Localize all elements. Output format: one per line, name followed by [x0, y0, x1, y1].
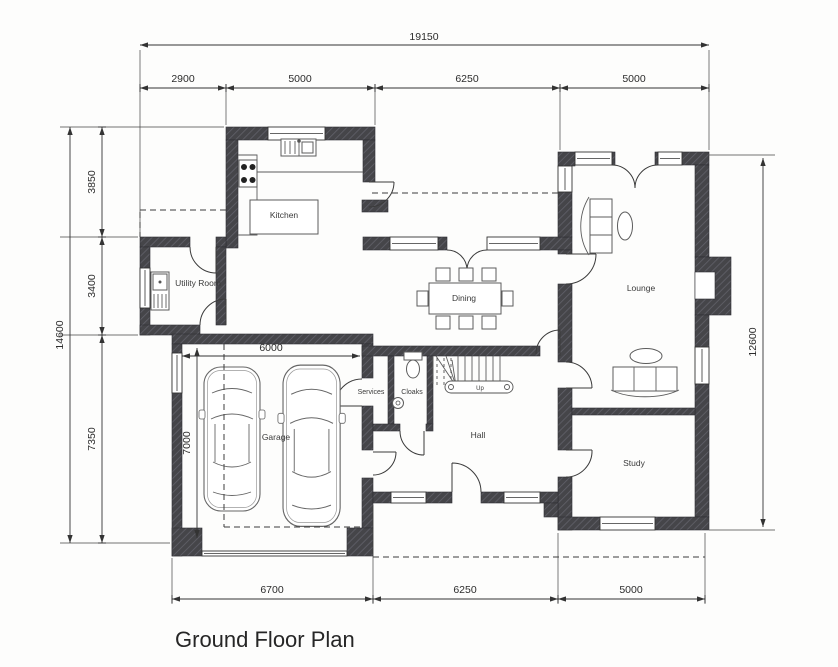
stairs-up-label: Up: [476, 386, 484, 392]
label-dining: Dining: [452, 293, 476, 303]
hall-window-right: [504, 492, 540, 503]
hall-study-door: [566, 450, 592, 477]
garage-cars: [199, 365, 345, 526]
dim-left-3: 7350: [86, 427, 98, 451]
label-hall: Hall: [471, 430, 486, 440]
car-right: [278, 365, 345, 526]
dim-top-1: 2900: [171, 73, 195, 85]
sofa-bottom: [611, 367, 679, 397]
staircase: Up: [433, 356, 513, 393]
hob-icon: [239, 160, 257, 187]
dim-right-overall: 12600: [747, 327, 759, 356]
hall-window-left: [391, 492, 426, 503]
fireplace-opening: [695, 272, 715, 299]
page-title: Ground Floor Plan: [175, 627, 355, 652]
study-window: [600, 517, 655, 530]
label-cloaks: Cloaks: [401, 389, 423, 396]
label-study: Study: [623, 458, 645, 468]
hall-lounge-door: [566, 362, 592, 388]
toilet-icon: [404, 352, 422, 378]
sofa-left: [581, 197, 612, 255]
lounge-window-right: [695, 347, 709, 384]
floor-plan-drawing: Up: [0, 0, 838, 667]
dining-lounge-door: [566, 254, 596, 284]
dim-top-4: 5000: [622, 73, 646, 85]
cloaks-door: [400, 431, 424, 455]
floor-plan-page: Up: [0, 0, 838, 667]
kitchen-sink-icon: [281, 139, 316, 156]
garage-door: [202, 551, 347, 556]
side-table-left: [618, 212, 633, 240]
kitchen-fittings: [238, 139, 363, 235]
label-garage: Garage: [262, 432, 291, 442]
dining-french-doors: [447, 250, 487, 270]
garage-hall-door: [373, 452, 396, 475]
utility-door-top: [190, 247, 216, 273]
dim-top-2: 5000: [288, 73, 312, 85]
dim-left-overall: 14600: [54, 320, 66, 349]
dim-bottom-1: 6700: [260, 584, 284, 596]
lounge-window-left: [558, 166, 572, 192]
garage-window: [172, 353, 182, 393]
dim-bottom-3: 5000: [619, 584, 643, 596]
label-services: Services: [358, 389, 385, 396]
lounge-window-top-left: [575, 152, 612, 165]
dim-garage-depth: 7000: [181, 431, 193, 455]
dim-left-1: 3850: [86, 170, 98, 194]
label-kitchen: Kitchen: [270, 210, 299, 220]
dim-top-overall: 19150: [409, 31, 438, 43]
dining-window-right: [487, 237, 540, 250]
kitchen-window: [268, 127, 325, 140]
dim-left-2: 3400: [86, 274, 98, 298]
label-lounge: Lounge: [627, 283, 656, 293]
coffee-table: [630, 349, 662, 364]
utility-fittings: [151, 272, 169, 310]
basin-icon: [393, 398, 404, 409]
lounge-furniture: [581, 197, 679, 397]
utility-sink-icon: [151, 272, 169, 310]
front-door: [452, 463, 481, 492]
car-left: [199, 367, 265, 511]
dim-garage-width: 6000: [259, 342, 283, 354]
lounge-window-top-right: [658, 152, 682, 165]
cloaks-fittings: [393, 352, 423, 409]
lounge-french-doors: [612, 165, 658, 188]
label-utility: Utility Room: [175, 278, 221, 288]
dim-top-3: 6250: [455, 73, 479, 85]
utility-window: [140, 268, 150, 308]
dim-bottom-2: 6250: [453, 584, 477, 596]
dining-window-left: [390, 237, 438, 250]
